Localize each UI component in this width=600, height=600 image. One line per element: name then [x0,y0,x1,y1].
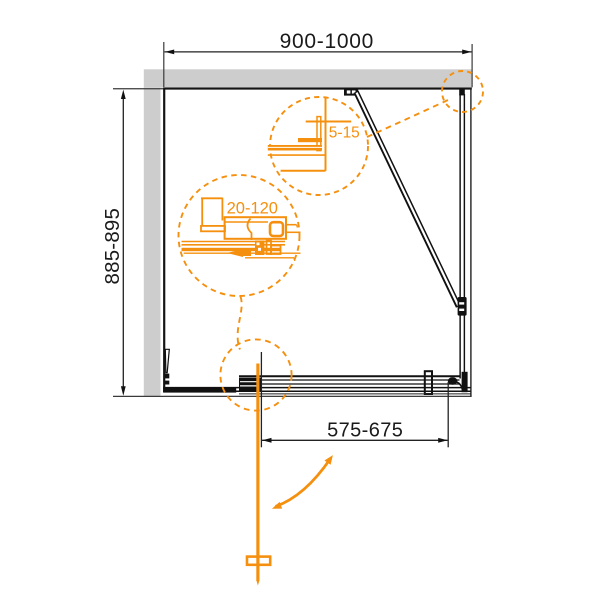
svg-text:900-1000: 900-1000 [280,30,374,53]
svg-text:575-675: 575-675 [327,420,403,442]
svg-text:885-895: 885-895 [101,208,124,285]
svg-text:20-120: 20-120 [227,200,278,218]
svg-text:5-15: 5-15 [329,125,360,142]
